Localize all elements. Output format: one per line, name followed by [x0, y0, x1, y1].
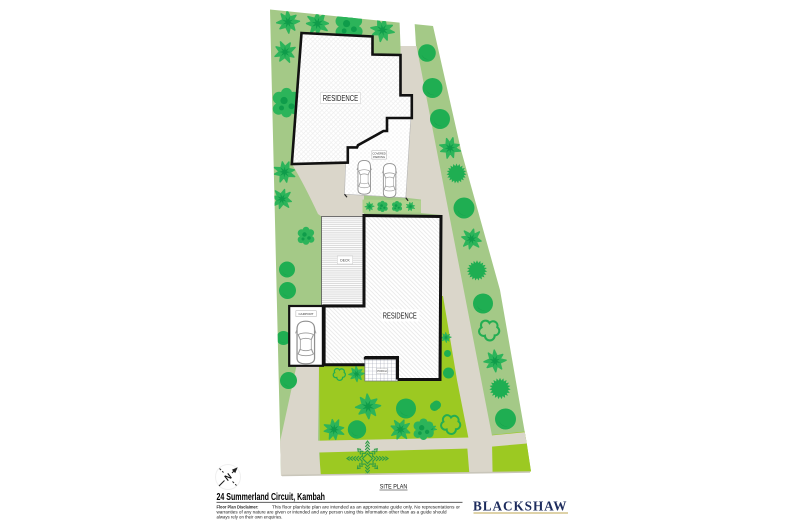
svg-text:PORCH: PORCH	[377, 369, 386, 373]
svg-text:PARKING: PARKING	[373, 155, 385, 159]
svg-text:DECK: DECK	[340, 259, 350, 263]
svg-text:SITE PLAN: SITE PLAN	[380, 483, 408, 490]
svg-text:CARPORT: CARPORT	[298, 312, 313, 316]
svg-text:COVERED: COVERED	[372, 151, 385, 155]
svg-text:BLACKSHAW: BLACKSHAW	[473, 499, 568, 514]
svg-text:24 Summerland Circuit, Kambah: 24 Summerland Circuit, Kambah	[217, 492, 326, 503]
svg-text:always rely on their own enqui: always rely on their own enquiries.	[217, 515, 283, 520]
svg-text:RESIDENCE: RESIDENCE	[323, 94, 358, 103]
svg-text:RESIDENCE: RESIDENCE	[383, 312, 417, 321]
